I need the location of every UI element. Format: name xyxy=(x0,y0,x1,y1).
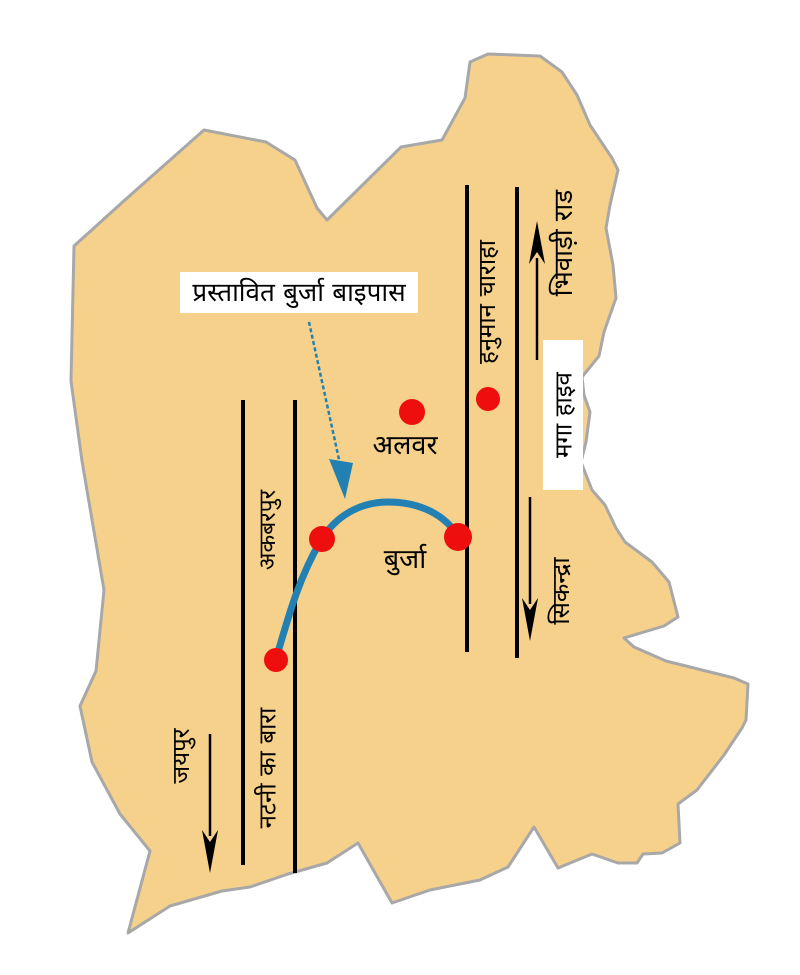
bhiwadi-road-label: भिवाड़ी राड xyxy=(550,145,578,341)
map-canvas xyxy=(0,0,800,975)
natni-ka-bara-label: नटनी का बारा xyxy=(254,691,282,846)
district-map: प्रस्तावित बुर्जा बाइपास भिवाड़ी राड हनु… xyxy=(0,0,800,975)
marker-dot-hanuman-road xyxy=(476,387,500,411)
district-region-shape xyxy=(71,54,748,933)
marker-dot-burja xyxy=(444,523,472,551)
hanuman-chauraha-label: हनुमान चाराहा xyxy=(473,229,501,375)
marker-dot-bypass-west xyxy=(309,526,335,552)
proposed-bypass-label-text: प्रस्तावित बुर्जा बाइपास xyxy=(192,280,405,306)
sikandra-label: सिकन्द्रा xyxy=(547,538,575,644)
marker-dot-natni xyxy=(264,648,288,672)
jaipur-label: जयपुर xyxy=(167,722,195,790)
marker-dot-alwar xyxy=(399,399,425,425)
akbarpur-label: अकबरपुर xyxy=(254,480,282,580)
mega-highway-label: मगा हाइव xyxy=(550,353,578,478)
burja-label: बुर्जा xyxy=(377,543,433,575)
alwar-label: अलवर xyxy=(366,430,444,460)
proposed-bypass-label: प्रस्तावित बुर्जा बाइपास xyxy=(180,272,418,313)
